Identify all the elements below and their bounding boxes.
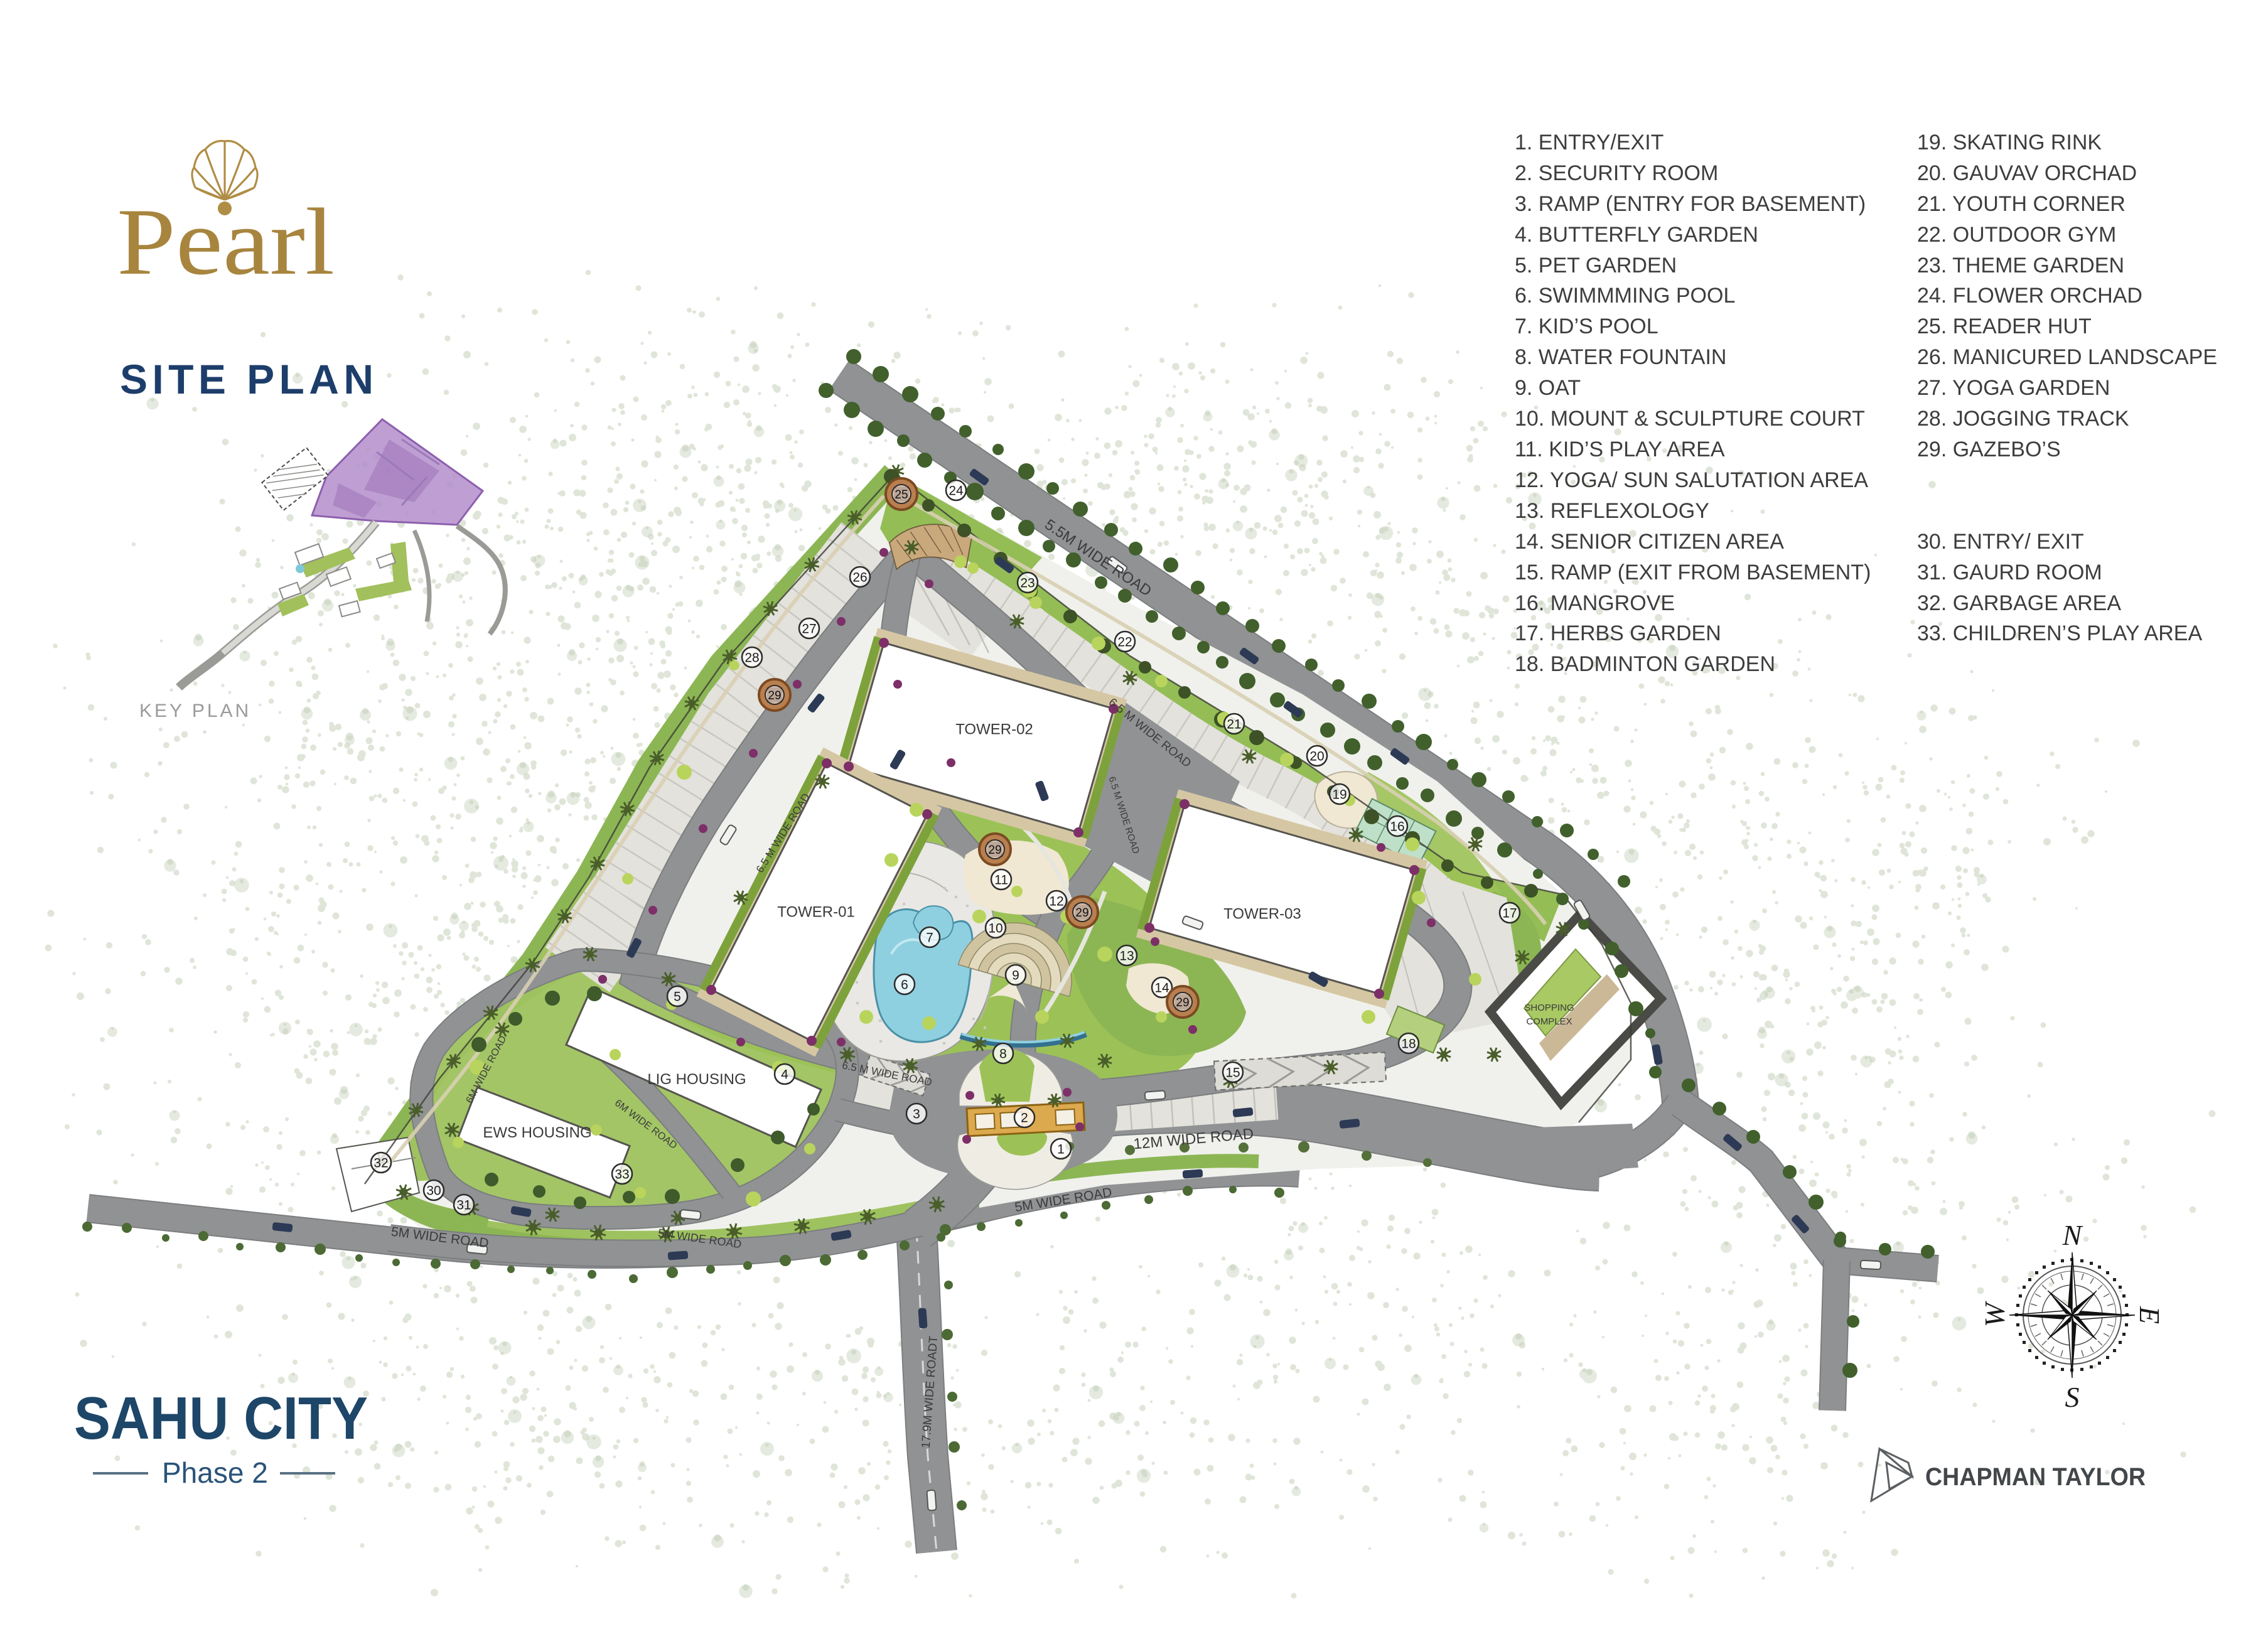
svg-text:18: 18 bbox=[1401, 1037, 1416, 1051]
svg-text:29: 29 bbox=[768, 689, 781, 702]
svg-text:12: 12 bbox=[1049, 895, 1063, 909]
svg-text:10: 10 bbox=[988, 922, 1002, 936]
svg-text:16: 16 bbox=[1390, 820, 1404, 834]
svg-text:1. ENTRY/EXIT: 1. ENTRY/EXIT bbox=[1515, 131, 1663, 154]
svg-text:15: 15 bbox=[1225, 1066, 1240, 1080]
svg-text:33. CHILDREN’S PLAY AREA: 33. CHILDREN’S PLAY AREA bbox=[1917, 621, 2202, 645]
svg-text:25: 25 bbox=[895, 488, 908, 502]
svg-text:22. OUTDOOR GYM: 22. OUTDOOR GYM bbox=[1917, 223, 2116, 247]
svg-text:8. WATER FOUNTAIN: 8. WATER FOUNTAIN bbox=[1515, 345, 1726, 369]
svg-text:14. SENIOR CITIZEN AREA: 14. SENIOR CITIZEN AREA bbox=[1515, 530, 1784, 554]
svg-text:CHAPMAN TAYLOR: CHAPMAN TAYLOR bbox=[1925, 1463, 2146, 1491]
svg-text:20: 20 bbox=[1309, 750, 1324, 764]
svg-text:26. MANICURED LANDSCAPE: 26. MANICURED LANDSCAPE bbox=[1917, 345, 2217, 369]
svg-text:3. RAMP (ENTRY FOR BASEMENT): 3. RAMP (ENTRY FOR BASEMENT) bbox=[1515, 192, 1866, 216]
svg-text:12. YOGA/ SUN SALUTATION AREA: 12. YOGA/ SUN SALUTATION AREA bbox=[1515, 468, 1868, 492]
svg-text:20. GAUVAV ORCHAD: 20. GAUVAV ORCHAD bbox=[1917, 161, 2137, 185]
svg-text:2: 2 bbox=[1021, 1111, 1028, 1126]
svg-text:9: 9 bbox=[1012, 969, 1019, 983]
svg-text:18. BADMINTON GARDEN: 18. BADMINTON GARDEN bbox=[1515, 652, 1775, 676]
svg-text:13. REFLEXOLOGY: 13. REFLEXOLOGY bbox=[1515, 499, 1709, 523]
svg-text:13: 13 bbox=[1119, 949, 1134, 964]
svg-text:23. THEME GARDEN: 23. THEME GARDEN bbox=[1917, 254, 2124, 277]
svg-text:29: 29 bbox=[988, 844, 1001, 857]
svg-text:27: 27 bbox=[802, 622, 816, 637]
svg-text:2. SECURITY ROOM: 2. SECURITY ROOM bbox=[1515, 161, 1718, 185]
svg-text:30: 30 bbox=[426, 1184, 441, 1198]
svg-text:TOWER-03: TOWER-03 bbox=[1223, 905, 1301, 922]
svg-text:24. FLOWER ORCHAD: 24. FLOWER ORCHAD bbox=[1917, 284, 2142, 308]
svg-text:19: 19 bbox=[1332, 788, 1346, 802]
svg-text:29: 29 bbox=[1176, 996, 1189, 1009]
svg-text:31: 31 bbox=[456, 1198, 471, 1213]
svg-text:32: 32 bbox=[374, 1156, 388, 1171]
svg-text:11. KID’S PLAY AREA: 11. KID’S PLAY AREA bbox=[1515, 438, 1725, 461]
svg-text:COMPLEX: COMPLEX bbox=[1526, 1016, 1572, 1027]
svg-text:6. SWIMMMING POOL: 6. SWIMMMING POOL bbox=[1515, 284, 1735, 308]
svg-text:1: 1 bbox=[1057, 1142, 1065, 1157]
svg-text:SAHU CITY: SAHU CITY bbox=[74, 1385, 368, 1452]
svg-text:10. MOUNT & SCULPTURE COURT: 10. MOUNT & SCULPTURE COURT bbox=[1515, 407, 1865, 431]
svg-text:E: E bbox=[2134, 1306, 2166, 1324]
svg-text:23: 23 bbox=[1020, 576, 1035, 591]
svg-text:21: 21 bbox=[1227, 718, 1241, 732]
svg-text:11: 11 bbox=[994, 873, 1008, 888]
svg-text:5: 5 bbox=[674, 990, 681, 1004]
svg-text:5. PET GARDEN: 5. PET GARDEN bbox=[1515, 254, 1677, 277]
svg-text:28. JOGGING TRACK: 28. JOGGING TRACK bbox=[1917, 407, 2129, 431]
svg-text:SITE PLAN: SITE PLAN bbox=[120, 356, 374, 402]
svg-text:TOWER-02: TOWER-02 bbox=[955, 721, 1033, 738]
svg-text:Phase 2: Phase 2 bbox=[162, 1456, 268, 1489]
svg-text:SHOPPING: SHOPPING bbox=[1524, 1002, 1574, 1013]
svg-text:4: 4 bbox=[781, 1068, 788, 1082]
svg-text:Pearl: Pearl bbox=[117, 189, 335, 294]
svg-text:26: 26 bbox=[852, 571, 867, 585]
svg-text:33: 33 bbox=[615, 1168, 629, 1182]
svg-text:8: 8 bbox=[999, 1047, 1007, 1062]
svg-text:N: N bbox=[2062, 1219, 2083, 1251]
svg-text:7. KID’S POOL: 7. KID’S POOL bbox=[1515, 314, 1658, 338]
svg-text:3: 3 bbox=[913, 1107, 920, 1122]
svg-text:16. MANGROVE: 16. MANGROVE bbox=[1515, 591, 1675, 615]
svg-text:W: W bbox=[1979, 1301, 2011, 1327]
svg-text:30. ENTRY/ EXIT: 30. ENTRY/ EXIT bbox=[1917, 530, 2084, 554]
svg-text:15. RAMP (EXIT FROM BASEMENT): 15. RAMP (EXIT FROM BASEMENT) bbox=[1515, 561, 1871, 584]
svg-text:31. GAURD ROOM: 31. GAURD ROOM bbox=[1917, 561, 2102, 584]
svg-text:4. BUTTERFLY GARDEN: 4. BUTTERFLY GARDEN bbox=[1515, 223, 1758, 247]
svg-text:25. READER HUT: 25. READER HUT bbox=[1917, 314, 2092, 338]
svg-text:19. SKATING RINK: 19. SKATING RINK bbox=[1917, 131, 2102, 154]
svg-text:9. OAT: 9. OAT bbox=[1515, 376, 1581, 400]
svg-text:21. YOUTH CORNER: 21. YOUTH CORNER bbox=[1917, 192, 2126, 216]
svg-text:32. GARBAGE AREA: 32. GARBAGE AREA bbox=[1917, 591, 2121, 615]
svg-text:7: 7 bbox=[926, 931, 933, 945]
svg-text:S: S bbox=[2065, 1381, 2080, 1413]
svg-text:LIG HOUSING: LIG HOUSING bbox=[647, 1071, 746, 1088]
svg-text:22: 22 bbox=[1117, 635, 1132, 650]
svg-text:17. HERBS GARDEN: 17. HERBS GARDEN bbox=[1515, 621, 1721, 645]
svg-text:KEY PLAN: KEY PLAN bbox=[139, 701, 251, 721]
svg-text:28: 28 bbox=[744, 651, 759, 665]
svg-text:EWS HOUSING: EWS HOUSING bbox=[483, 1124, 591, 1141]
svg-text:6: 6 bbox=[901, 978, 908, 992]
svg-text:14: 14 bbox=[1154, 981, 1169, 996]
svg-text:17: 17 bbox=[1502, 906, 1517, 921]
svg-text:29: 29 bbox=[1075, 906, 1088, 920]
svg-text:29. GAZEBO’S: 29. GAZEBO’S bbox=[1917, 438, 2061, 461]
svg-text:24: 24 bbox=[949, 484, 964, 498]
svg-text:27. YOGA GARDEN: 27. YOGA GARDEN bbox=[1917, 376, 2110, 400]
svg-text:TOWER-01: TOWER-01 bbox=[777, 903, 855, 920]
